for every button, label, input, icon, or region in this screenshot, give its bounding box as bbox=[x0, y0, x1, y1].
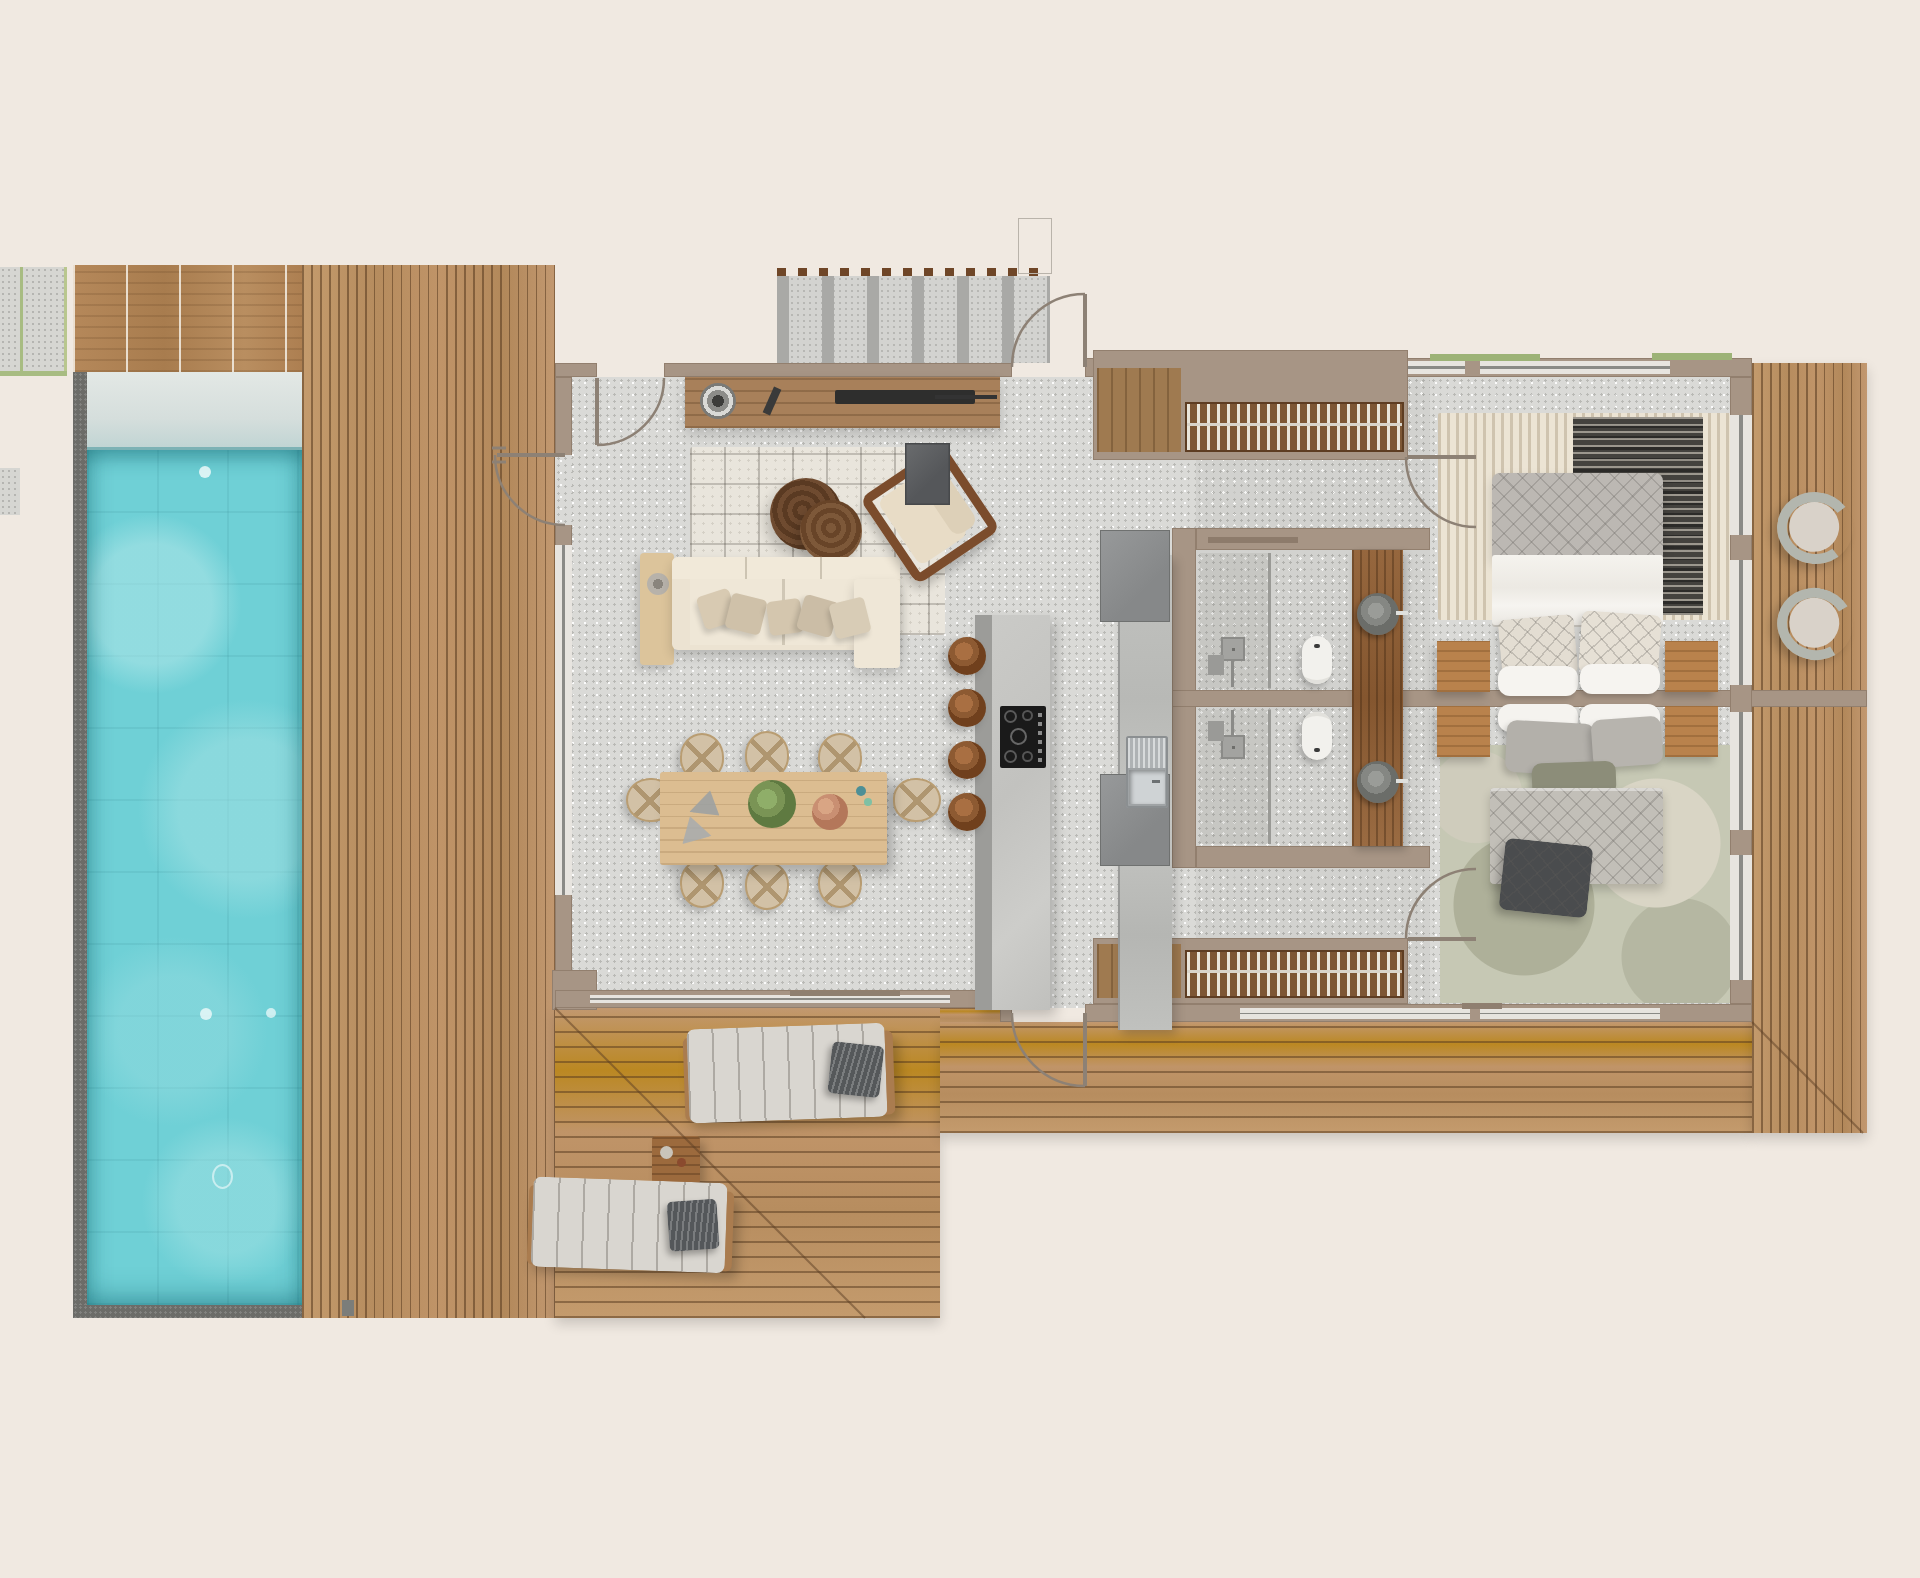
floor-plan-canvas bbox=[0, 0, 1920, 1578]
door-swing-overlay bbox=[0, 0, 1920, 1578]
